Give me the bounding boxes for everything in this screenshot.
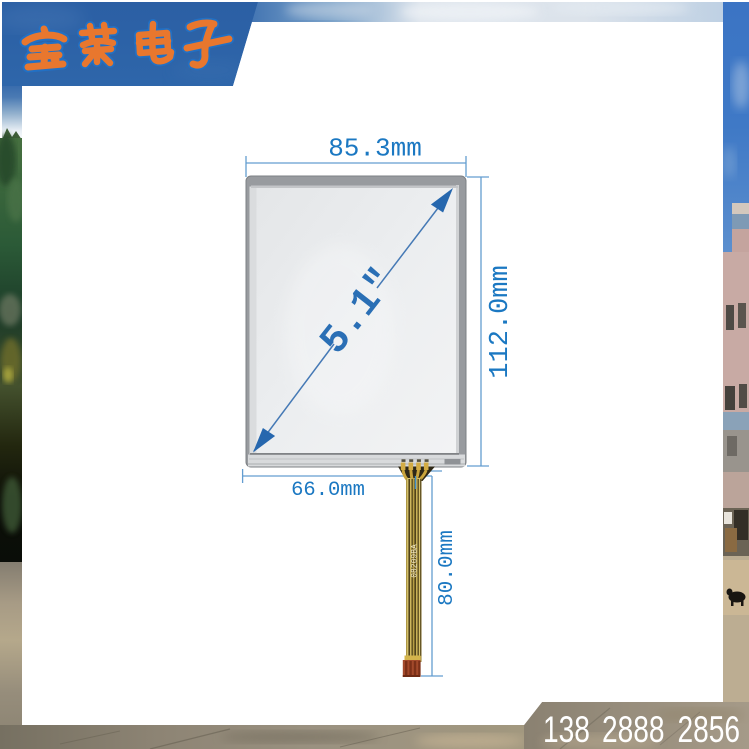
svg-text:85.3mm: 85.3mm <box>328 134 422 164</box>
svg-text:66.0mm: 66.0mm <box>291 479 365 502</box>
svg-text:112.0mm: 112.0mm <box>486 265 516 378</box>
svg-text:13828882856: 13828882856 <box>543 708 740 749</box>
svg-text:08209BA: 08209BA <box>411 544 420 578</box>
svg-text:80.0mm: 80.0mm <box>436 530 459 606</box>
